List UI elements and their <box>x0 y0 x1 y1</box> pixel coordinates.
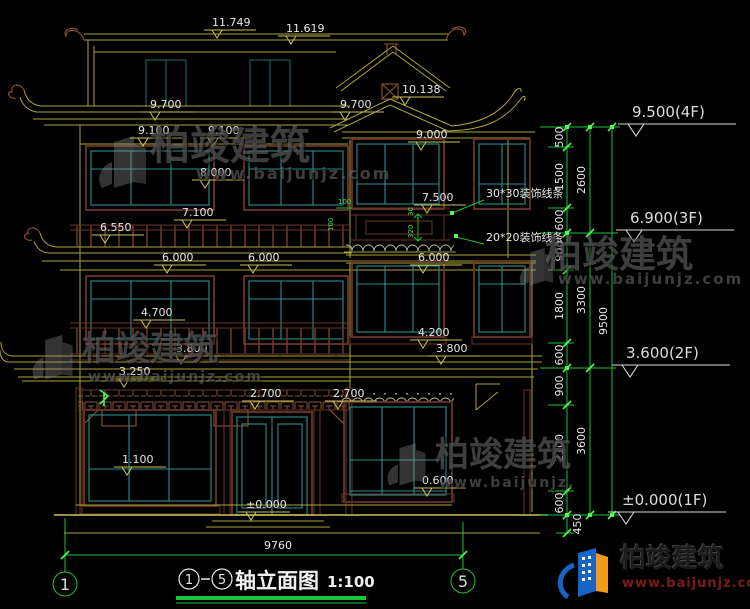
watermark-brand: 柏竣建筑 <box>435 438 571 472</box>
drawing-title: 1 5 轴立面图 1:100 <box>176 569 375 603</box>
title-axis-end: 5 <box>218 573 226 588</box>
floor-mark-label: 3.600(2F) <box>626 344 699 362</box>
elevation-mark-label: 7.500 <box>422 191 454 204</box>
chain-dim: 600 <box>553 210 566 231</box>
elevation-mark-label: 10.138 <box>402 83 441 96</box>
title-text: 轴立面图 <box>235 569 319 593</box>
chain-dim: 3600 <box>575 427 588 455</box>
floor-mark-label: 9.500(4F) <box>632 103 705 121</box>
elevation-mark-label: 11.749 <box>212 16 251 29</box>
juliet-molding-detail <box>336 208 456 252</box>
detail-dim: 100 <box>327 218 335 231</box>
floor-level-marks: 9.500(4F) 6.900(3F) 3.600(2F) ±0.000(1F) <box>608 103 736 524</box>
chain-dim: 500 <box>553 127 566 148</box>
axis-bubble-right: 5 <box>458 572 468 591</box>
company-logo-url: www.baijunjz.com <box>622 576 750 591</box>
watermark-logo-icon <box>94 132 150 196</box>
floor-mark-label: 6.900(3F) <box>630 209 703 227</box>
elevation-mark-label: 6.000 <box>248 251 280 264</box>
elevation-mark-label: 3.800 <box>436 342 468 355</box>
roof-top <box>65 27 466 55</box>
elevation-mark-label: 7.100 <box>182 206 214 219</box>
chain-dim: 1500 <box>553 163 566 191</box>
company-logo-icon <box>554 545 618 601</box>
axis-bubble-left: 1 <box>60 575 70 594</box>
watermark-clipped: 柏竣建筑 www.baijunjz.com <box>383 436 575 496</box>
watermark-url: www.baijunjz.com <box>196 166 391 182</box>
elevation-mark-label: 9.700 <box>340 98 372 111</box>
ground-lines <box>54 505 548 533</box>
cad-elevation-drawing: 1 5 9760 30*30装饰线条 20*20装饰线条 100 100 30 … <box>0 0 750 609</box>
annotation-molding-30: 30*30装饰线条 <box>486 186 564 200</box>
detail-dim: 320 <box>407 225 415 238</box>
watermark-url: www.baijunjz.com <box>439 476 575 490</box>
chain-dim: 900 <box>553 376 566 397</box>
elevation-mark-label: 6.550 <box>100 221 132 234</box>
elevation-mark-label: 11.619 <box>286 22 325 35</box>
watermark-logo-icon <box>383 440 429 492</box>
elevation-mark-label: 1.100 <box>122 453 154 466</box>
detail-dim: 100 <box>338 198 351 206</box>
elevation-mark-label: 6.000 <box>162 251 194 264</box>
elevation-mark-label: 9.000 <box>416 128 448 141</box>
elevation-mark-label: 6.000 <box>418 251 450 264</box>
watermark-url: www.baijunjz.com <box>88 370 263 384</box>
watermark-url: www.baijunjz.com <box>558 272 743 287</box>
detail-dim: 30 <box>407 207 415 216</box>
elevation-linework: 1 5 9760 30*30装饰线条 20*20装饰线条 100 100 30 … <box>0 0 750 609</box>
company-logo-brand: 柏竣建筑 <box>620 546 724 572</box>
chain-dim: 2600 <box>575 166 588 194</box>
title-scale: 1:100 <box>327 573 375 591</box>
title-axis-start: 1 <box>185 573 193 588</box>
watermark-brand: 柏竣建筑 <box>150 126 310 166</box>
chain-dim: 450 <box>571 514 584 535</box>
elevation-mark-label: 2.700 <box>333 387 365 400</box>
watermark-brand: 柏竣建筑 <box>82 332 218 366</box>
elevation-mark-label: 2.700 <box>250 387 282 400</box>
chain-dim: 3300 <box>575 286 588 314</box>
chain-dim: 1800 <box>553 292 566 320</box>
chain-dim-overall: 9500 <box>597 307 610 335</box>
elevation-mark-label: 4.200 <box>418 326 450 339</box>
elevation-mark-label: 9.700 <box>150 98 182 111</box>
elevation-mark-label: ±0.000 <box>246 498 287 511</box>
elevation-mark-label: 4.700 <box>141 306 173 319</box>
watermark-logo-icon <box>28 330 76 388</box>
floor-mark-label: ±0.000(1F) <box>622 491 707 509</box>
fourth-floor-wall <box>88 40 336 106</box>
watermark-brand: 柏竣建筑 <box>545 236 693 273</box>
chain-dim: 600 <box>553 345 566 366</box>
overall-width-dim: 9760 <box>264 539 292 552</box>
